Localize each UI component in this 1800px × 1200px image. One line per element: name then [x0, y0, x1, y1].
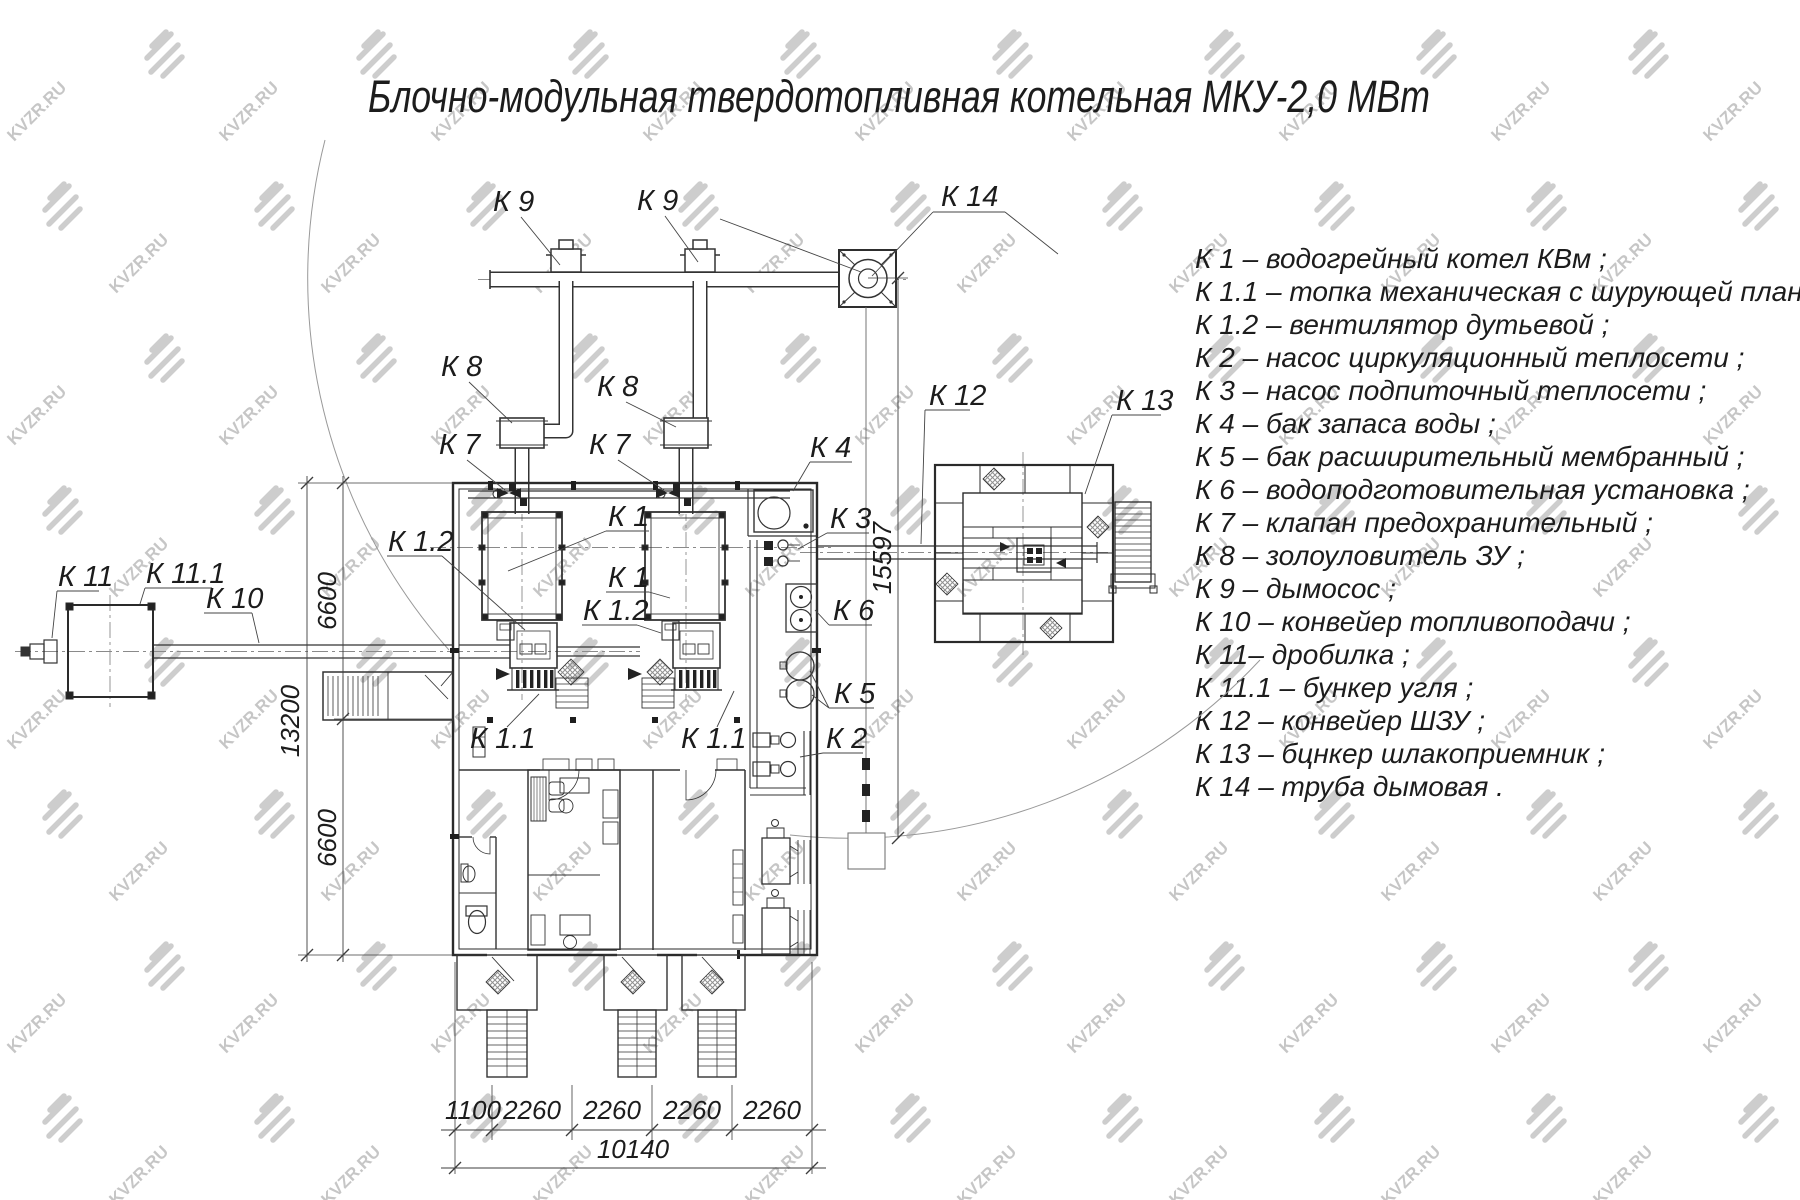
- label-k9-right: К 9: [637, 185, 678, 217]
- legend-item: К 3 – насос подпиточный теплосети ;: [1195, 375, 1706, 406]
- drawing-title: Блочно-модульная твердотопливная котельн…: [368, 71, 1430, 122]
- legend-item: К 13 – бцнкер шлакоприемник ;: [1195, 738, 1605, 769]
- label-k8-left: К 8: [441, 351, 482, 383]
- dim-bottom-segment: 2260: [662, 1095, 721, 1125]
- label-k2: К 2: [826, 723, 867, 755]
- label-k1-1-left: К 1.1: [470, 723, 535, 755]
- label-k6: К 6: [833, 595, 875, 627]
- label-k8-right: К 8: [597, 371, 638, 403]
- legend-item: К 10 – конвейер топливоподачи ;: [1195, 606, 1631, 637]
- dim-bottom-total: 10140: [597, 1134, 670, 1164]
- label-k12: К 12: [929, 380, 986, 412]
- label-k1-2-left: К 1.2: [388, 526, 453, 558]
- label-k14: К 14: [941, 181, 998, 213]
- label-k13: К 13: [1116, 385, 1173, 417]
- chimney: [839, 250, 896, 307]
- legend-item: К 1 – водогрейный котел КВм ;: [1195, 243, 1607, 274]
- legend-item: К 1.1 – топка механическая с шурующей пл…: [1195, 276, 1800, 307]
- dim-left-lower: 6600: [312, 809, 342, 867]
- drawing-sheet: KVZR.RU KVZR.RU Блочно-модульная твердот…: [0, 0, 1800, 1200]
- legend-item: К 2 – насос циркуляционный теплосети ;: [1195, 342, 1744, 373]
- draft-fan: [497, 621, 514, 640]
- dim-bottom-segment: 2260: [502, 1095, 561, 1125]
- label-k5: К 5: [834, 678, 876, 710]
- dim-left-total: 13200: [275, 684, 305, 757]
- label-k11: К 11: [58, 561, 113, 593]
- draft-fan: [662, 621, 679, 640]
- dim-left-upper: 6600: [312, 572, 342, 630]
- legend-item: К 11– дробилка ;: [1195, 639, 1410, 670]
- label-k3: К 3: [830, 503, 871, 535]
- dim-chimney-height: 15597: [867, 520, 897, 594]
- label-k9-left: К 9: [493, 186, 534, 218]
- legend-item: К 1.2 – вентилятор дутьевой ;: [1195, 309, 1609, 340]
- legend-item: К 14 – труба дымовая .: [1195, 771, 1504, 802]
- label-k1-1-right: К 1.1: [681, 723, 746, 755]
- ash-collector: [496, 418, 548, 448]
- legend-item: К 9 – дымосос ;: [1195, 573, 1396, 604]
- boiler-plant-plan: KVZR.RU KVZR.RU Блочно-модульная твердот…: [0, 0, 1800, 1200]
- dim-bottom-segment: 1100: [445, 1095, 501, 1125]
- label-k10: К 10: [206, 583, 263, 615]
- label-k1-upper: К 1: [608, 501, 649, 533]
- label-k7-right: К 7: [589, 429, 632, 461]
- label-k1-2-right: К 1.2: [583, 595, 648, 627]
- legend-item: К 7 – клапан предохранительный ;: [1195, 507, 1653, 538]
- legend-item: К 12 – конвейер ШЗУ ;: [1195, 705, 1485, 736]
- label-k4: К 4: [810, 432, 851, 464]
- legend-item: К 5 – бак расширительный мембранный ;: [1195, 441, 1744, 472]
- watermark-layer: [0, 0, 1800, 1200]
- dim-bottom-segment: 2260: [742, 1095, 801, 1125]
- legend-item: К 6 – водоподготовительная установка ;: [1195, 474, 1750, 505]
- dim-bottom-segment: 2260: [582, 1095, 641, 1125]
- legend-item: К 4 – бак запаса воды ;: [1195, 408, 1496, 439]
- legend-item: К 11.1 – бункер угля ;: [1195, 672, 1473, 703]
- label-k1-lower: К 1: [608, 562, 649, 594]
- legend-item: К 8 – золоуловитель ЗУ ;: [1195, 540, 1525, 571]
- label-k7-left: К 7: [439, 429, 482, 461]
